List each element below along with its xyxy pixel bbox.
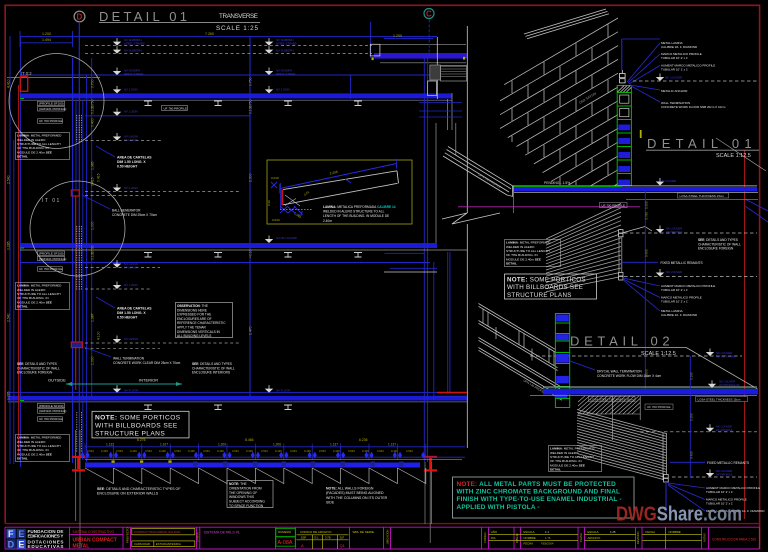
svg-text:DRYCAL WALL TERMINATION: DRYCAL WALL TERMINATION bbox=[597, 370, 642, 374]
svg-text:NV LNSSN: NV LNSSN bbox=[124, 337, 138, 341]
svg-text:LENGTH OF THE BUILDING. IN MOD: LENGTH OF THE BUILDING. IN MODULE DE bbox=[323, 214, 389, 218]
svg-text:DETAIL: DETAIL bbox=[17, 457, 28, 461]
svg-text:WALL TERMINATION: WALL TERMINATION bbox=[113, 357, 145, 361]
svg-text:CODIGO DE ARCHIVO: CODIGO DE ARCHIVO bbox=[300, 530, 332, 534]
svg-text:4.543: 4.543 bbox=[290, 449, 297, 453]
svg-text:STRUCTURE PLANS: STRUCTURE PLANS bbox=[507, 292, 572, 299]
svg-text:0.50 HEIGHT: 0.50 HEIGHT bbox=[117, 165, 138, 169]
svg-text:DETAIL: DETAIL bbox=[17, 155, 28, 159]
svg-text:2.40m: 2.40m bbox=[323, 219, 332, 223]
svg-text:BRICK STRAW: BRICK STRAW bbox=[276, 72, 296, 76]
svg-text:0.426: 0.426 bbox=[130, 449, 137, 453]
svg-text:NV 1.200N: NV 1.200N bbox=[124, 186, 138, 190]
svg-text:UBICACION: UBICACION bbox=[385, 529, 389, 544]
svg-text:WITH ZINC CHROMATE BACKGROUND: WITH ZINC CHROMATE BACKGROUND AND FINAL bbox=[457, 489, 621, 496]
svg-text:ARCHIVO: ARCHIVO bbox=[588, 536, 602, 540]
svg-text:NV SLBBSPH: NV SLBBSPH bbox=[124, 49, 142, 53]
svg-text:0.285: 0.285 bbox=[7, 391, 11, 400]
svg-text:TUBULAR 10' 2' x 1': TUBULAR 10' 2' x 1' bbox=[661, 56, 689, 60]
svg-text:4.543: 4.543 bbox=[261, 449, 268, 453]
svg-text:0.100: 0.100 bbox=[90, 251, 94, 260]
svg-text:NV FLOOR: NV FLOOR bbox=[124, 389, 138, 393]
svg-text:NK LOUVER: NK LOUVER bbox=[665, 76, 683, 80]
svg-text:CONCRETE DIM 25cm X 70cm: CONCRETE DIM 25cm X 70cm bbox=[112, 213, 157, 217]
svg-text:0.426: 0.426 bbox=[246, 449, 253, 453]
svg-text:1.132: 1.132 bbox=[106, 443, 114, 447]
svg-text:WELDED IN ALERO STRUCTURE TO A: WELDED IN ALERO STRUCTURE TO ALL bbox=[323, 210, 385, 214]
svg-text:2.540: 2.540 bbox=[7, 313, 11, 322]
svg-text:ORIENTATION FROM: ORIENTATION FROM bbox=[229, 486, 262, 490]
svg-text:NOTE: ALL METAL PARTS MUST BE: NOTE: ALL METAL PARTS MUST BE PROTECTED bbox=[457, 481, 617, 488]
svg-text:PLANO: PLANO bbox=[579, 533, 583, 542]
svg-text:DETAIL: DETAIL bbox=[506, 262, 517, 266]
svg-text:NK LOUVER: NK LOUVER bbox=[660, 179, 676, 183]
svg-text:3LP: 3LP bbox=[340, 536, 345, 540]
svg-text:0.400: 0.400 bbox=[90, 118, 94, 127]
svg-text:DIM 1.50 LONG. X: DIM 1.50 LONG. X bbox=[117, 160, 146, 164]
svg-text:ENCLOSURE FOREIGN: ENCLOSURE FOREIGN bbox=[698, 247, 734, 251]
svg-text:OUTSIDE: OUTSIDE bbox=[48, 378, 66, 383]
svg-text:TUBULAR 10' 2' x 1': TUBULAR 10' 2' x 1' bbox=[706, 490, 734, 494]
svg-text:INTERIOR: INTERIOR bbox=[139, 378, 158, 383]
svg-text:APPLIED WITH PISTOLA -: APPLIED WITH PISTOLA - bbox=[457, 504, 540, 511]
svg-text:STEEL STRABS: STEEL STRABS bbox=[276, 41, 297, 45]
svg-text:NV SLBBSPH: NV SLBBSPH bbox=[276, 49, 294, 53]
svg-text:0.415: 0.415 bbox=[90, 177, 94, 186]
svg-text:0.100: 0.100 bbox=[249, 105, 253, 114]
svg-text:NOMBRE: NOMBRE bbox=[524, 536, 536, 540]
svg-text:FIXED METALLIC REMANTS: FIXED METALLIC REMANTS bbox=[707, 461, 749, 465]
svg-text:1.385: 1.385 bbox=[90, 161, 94, 170]
svg-text:ESP: ESP bbox=[301, 536, 306, 540]
svg-text:UF PROFILE: UF PROFILE bbox=[666, 230, 683, 234]
svg-text:NOMBRE: NOMBRE bbox=[669, 530, 681, 534]
svg-text:AÑO: AÑO bbox=[491, 529, 498, 534]
svg-text:DETAIL 01: DETAIL 01 bbox=[99, 9, 191, 24]
svg-text:1.000: 1.000 bbox=[90, 221, 94, 230]
svg-text:4.543: 4.543 bbox=[116, 449, 123, 453]
svg-text:WITH THE COLUMNS ON ITS OUTER: WITH THE COLUMNS ON ITS OUTER bbox=[326, 496, 388, 500]
svg-text:1.494: 1.494 bbox=[42, 38, 51, 42]
svg-text:7.260: 7.260 bbox=[205, 32, 214, 36]
svg-text:D: D bbox=[8, 539, 15, 549]
svg-text:3-7B: 3-7B bbox=[325, 536, 331, 540]
svg-text:0.040: 0.040 bbox=[271, 176, 279, 180]
svg-text:1:25: 1:25 bbox=[610, 530, 616, 534]
svg-text:WITH BILLBOARDS SEE: WITH BILLBOARDS SEE bbox=[95, 423, 178, 430]
svg-text:UF 700 PROFILE: UF 700 PROFILE bbox=[39, 267, 63, 271]
svg-text:DETAIL: DETAIL bbox=[17, 305, 28, 309]
svg-text:CAPACIDAD: CAPACIDAD bbox=[134, 542, 150, 546]
svg-text:0.285: 0.285 bbox=[7, 241, 11, 250]
svg-text:4.543: 4.543 bbox=[406, 449, 413, 453]
svg-text:CONCRETE WORK CLEAR DIM 25cm X: CONCRETE WORK CLEAR DIM 25cm X 70cm bbox=[113, 361, 181, 365]
svg-text:NV 1.200N: NV 1.200N bbox=[124, 88, 138, 92]
svg-text:1.200: 1.200 bbox=[393, 34, 402, 38]
svg-text:4.410: 4.410 bbox=[7, 79, 11, 88]
svg-text:WINDOWS THIS: WINDOWS THIS bbox=[229, 495, 255, 499]
svg-text:WRL DE SERIE: WRL DE SERIE bbox=[353, 530, 374, 534]
svg-text:E-1: E-1 bbox=[315, 536, 320, 540]
svg-text:A: A bbox=[301, 543, 304, 548]
svg-text:ENCLOSURE INTERIORS: ENCLOSURE INTERIORS bbox=[192, 371, 230, 375]
svg-text:NV FLOOR: NV FLOOR bbox=[276, 389, 290, 393]
svg-text:SCALE 1:12.5: SCALE 1:12.5 bbox=[716, 153, 751, 159]
svg-text:(GRN101 PROFILE): (GRN101 PROFILE) bbox=[39, 409, 66, 413]
svg-text:6.276: 6.276 bbox=[137, 438, 146, 442]
svg-text:4.543: 4.543 bbox=[145, 449, 152, 453]
svg-text:NUMERO: NUMERO bbox=[278, 530, 292, 534]
svg-text:LAMINA: LAMINA bbox=[195, 532, 199, 542]
svg-text:(GRN101 PROFILE): (GRN101 PROFILE) bbox=[39, 257, 66, 261]
svg-text:FIXED METALLIC REMANTS: FIXED METALLIC REMANTS bbox=[661, 261, 703, 265]
svg-text:METALIC ANCHOR: METALIC ANCHOR bbox=[661, 89, 688, 93]
svg-text:SUBJECT ACCORDING: SUBJECT ACCORDING bbox=[229, 500, 265, 504]
svg-text:0.426: 0.426 bbox=[101, 449, 108, 453]
svg-text:CODIGO: CODIGO bbox=[483, 532, 487, 543]
svg-text:DIM 1.50 LONG. X: DIM 1.50 LONG. X bbox=[117, 311, 146, 315]
svg-text:CONCRETE WORK FLOW DIM 15cm X: CONCRETE WORK FLOW DIM 15cm X 4cm bbox=[597, 374, 661, 378]
svg-text:AREA DE CARTELAS: AREA DE CARTELAS bbox=[117, 307, 152, 311]
svg-text:REVISION: REVISION bbox=[636, 531, 640, 544]
svg-text:4.543: 4.543 bbox=[377, 449, 384, 453]
svg-text:0.400: 0.400 bbox=[645, 249, 649, 257]
svg-text:(PROFILE SF100): (PROFILE SF100) bbox=[39, 404, 64, 408]
svg-text:FECHA: FECHA bbox=[646, 530, 656, 534]
svg-text:4.543: 4.543 bbox=[319, 449, 326, 453]
svg-text:E: E bbox=[18, 539, 24, 549]
svg-text:SEE: DETAILS AND CHARACTERISTI: SEE: DETAILS AND CHARACTERISTIC TYPES OF bbox=[97, 487, 181, 491]
svg-text:CONSTRUCCION AREA 2,520: CONSTRUCCION AREA 2,520 bbox=[712, 538, 756, 542]
svg-text:0.426: 0.426 bbox=[188, 449, 195, 453]
svg-text:SCALE 1:25: SCALE 1:25 bbox=[216, 25, 258, 32]
svg-text:8.466: 8.466 bbox=[245, 438, 254, 442]
svg-text:STRUCTURE PLANS: STRUCTURE PLANS bbox=[95, 431, 165, 438]
svg-text:CALIBRE 10- F. DIAMOND: CALIBRE 10- F. DIAMOND bbox=[661, 313, 698, 317]
svg-text:SISTEMA DETAILS #1: SISTEMA DETAILS #1 bbox=[204, 530, 240, 534]
svg-text:1.000: 1.000 bbox=[90, 356, 94, 365]
svg-text:NV NK LOUVER: NV NK LOUVER bbox=[276, 236, 297, 240]
svg-text:DIA: DIA bbox=[491, 536, 496, 540]
svg-text:FINISH WITH TYPE-TO-USE ENAMEL: FINISH WITH TYPE-TO-USE ENAMEL INDUSTRIA… bbox=[457, 496, 622, 503]
svg-text:WITH BILLBOARDS SEE: WITH BILLBOARDS SEE bbox=[507, 284, 583, 291]
svg-text:1.200: 1.200 bbox=[218, 443, 226, 447]
svg-text:0.750: 0.750 bbox=[249, 77, 253, 86]
svg-text:1.200: 1.200 bbox=[42, 32, 51, 36]
svg-text:1.107: 1.107 bbox=[160, 443, 168, 447]
svg-text:NT LNNNN: NT LNNNN bbox=[124, 138, 138, 142]
svg-text:NOTAS: NOTAS bbox=[703, 533, 707, 542]
svg-text:2.540: 2.540 bbox=[7, 175, 11, 184]
svg-text:UF 700 PROFILE: UF 700 PROFILE bbox=[39, 417, 63, 421]
svg-text:4.543: 4.543 bbox=[232, 449, 239, 453]
svg-text:TUBULAR 10' 1' x 1': TUBULAR 10' 1' x 1' bbox=[661, 68, 689, 72]
svg-text:(FACADES) MUST BEING ALIGNED: (FACADES) MUST BEING ALIGNED bbox=[326, 491, 384, 495]
svg-text:UF 700 PROFILE: UF 700 PROFILE bbox=[39, 119, 63, 123]
svg-text:EDUCATIVAS: EDUCATIVAS bbox=[28, 544, 64, 549]
svg-text:TRANSVERSE: TRANSVERSE bbox=[219, 13, 258, 20]
svg-text:(GRN101 PROFILE): (GRN101 PROFILE) bbox=[39, 107, 66, 111]
svg-text:4.543: 4.543 bbox=[203, 449, 210, 453]
svg-text:Q1: Q1 bbox=[340, 543, 346, 548]
svg-text:AREA DE CARTELAS: AREA DE CARTELAS bbox=[117, 156, 152, 160]
svg-text:COMPACT BOLIVARIAN SCHOOL: COMPACT BOLIVARIAN SCHOOL bbox=[134, 530, 181, 534]
svg-text:1.387: 1.387 bbox=[90, 313, 94, 322]
svg-text:FEB/2004: FEB/2004 bbox=[541, 542, 554, 546]
svg-text:0.400: 0.400 bbox=[690, 451, 694, 459]
svg-text:0.426: 0.426 bbox=[159, 449, 166, 453]
svg-text:CONCRETE WORK FLOOR SNB 20cm X: CONCRETE WORK FLOOR SNB 20cm X 10cm bbox=[661, 105, 726, 109]
svg-text:(PROFILE SF100): (PROFILE SF100) bbox=[39, 102, 64, 106]
svg-text:SISTEMA CONSTRUCTIVO: SISTEMA CONSTRUCTIVO bbox=[73, 530, 115, 534]
svg-text:NOTE: SOME PORTICOS: NOTE: SOME PORTICOS bbox=[507, 277, 586, 284]
svg-text:TUBULAR 10' 2' x 1': TUBULAR 10' 2' x 1' bbox=[661, 300, 689, 304]
svg-text:0.750: 0.750 bbox=[645, 212, 649, 220]
svg-text:ESTUDIANTES/DIA: ESTUDIANTES/DIA bbox=[156, 542, 181, 546]
svg-text:1:1: 1:1 bbox=[545, 530, 549, 534]
svg-text:NT LNNNN: NT LNNNN bbox=[124, 265, 138, 269]
svg-text:CALIBRE 18- F. DIAMOND: CALIBRE 18- F. DIAMOND bbox=[661, 45, 698, 49]
svg-text:LAMINA: METALICA PREFORMADA CA: LAMINA: METALICA PREFORMADA CALIBRE 14 bbox=[323, 205, 396, 209]
svg-text:/T 0:2: /T 0:2 bbox=[21, 71, 32, 76]
svg-text:SIDE: SIDE bbox=[326, 500, 335, 504]
svg-text:1.137: 1.137 bbox=[330, 443, 338, 447]
svg-text:0.415: 0.415 bbox=[97, 173, 101, 182]
svg-text:4.100: 4.100 bbox=[97, 331, 101, 340]
svg-text:METAL: METAL bbox=[73, 544, 90, 550]
svg-text:UF PROFILE: UF PROFILE bbox=[716, 472, 733, 476]
svg-text:UF 700 PROFILE: UF 700 PROFILE bbox=[647, 405, 671, 409]
svg-text:0.426: 0.426 bbox=[217, 449, 224, 453]
svg-text:0.50 HEIGHT: 0.50 HEIGHT bbox=[117, 316, 138, 320]
svg-text:UF 760 PROFILE: UF 760 PROFILE bbox=[164, 106, 188, 110]
svg-text:C: C bbox=[426, 10, 432, 19]
svg-text:NV 1.200N: NV 1.200N bbox=[276, 88, 290, 92]
svg-text:A-08A: A-08A bbox=[278, 540, 293, 546]
svg-text:DETAIL 02: DETAIL 02 bbox=[570, 334, 673, 349]
svg-text:BALL GENERATOR: BALL GENERATOR bbox=[112, 209, 141, 213]
svg-text:E: E bbox=[18, 529, 24, 539]
svg-text:NOTE: ALL WALLS FOREIGN: NOTE: ALL WALLS FOREIGN bbox=[326, 487, 374, 491]
svg-text:DETAIL 01: DETAIL 01 bbox=[647, 136, 755, 151]
svg-text:0.300: 0.300 bbox=[645, 201, 649, 209]
svg-text:TUBULAR 10' 2' x 1': TUBULAR 10' 2' x 1' bbox=[661, 288, 689, 292]
svg-text:BRICK STRAW: BRICK STRAW bbox=[124, 72, 144, 76]
svg-text:EDIFICACIONES Y: EDIFICACIONES Y bbox=[28, 533, 64, 538]
svg-text:PROYECTO: PROYECTO bbox=[126, 527, 130, 543]
svg-text:ALL BUILDING LEVELS: ALL BUILDING LEVELS bbox=[177, 334, 211, 338]
svg-text:6.190: 6.190 bbox=[690, 372, 694, 380]
svg-text:2.300: 2.300 bbox=[249, 173, 253, 182]
svg-text:ESCALA: ESCALA bbox=[524, 530, 535, 534]
svg-text:LOSA-STEEL THICKNESS 15cm: LOSA-STEEL THICKNESS 15cm bbox=[698, 398, 741, 402]
svg-text:6.236: 6.236 bbox=[359, 438, 368, 442]
svg-text:4.543: 4.543 bbox=[348, 449, 355, 453]
svg-text:NV 1.200N: NV 1.200N bbox=[124, 283, 138, 287]
svg-text:NK LOUVER: NK LOUVER bbox=[666, 270, 682, 274]
svg-text:FECHA: FECHA bbox=[524, 542, 534, 546]
svg-text:NOTE: THE: NOTE: THE bbox=[229, 482, 248, 486]
svg-text:UF PROFILE 03: UF PROFILE 03 bbox=[719, 383, 740, 387]
svg-text:(PROFILE SF100): (PROFILE SF100) bbox=[39, 251, 64, 255]
svg-text:1:76: 1:76 bbox=[545, 536, 551, 540]
svg-text:0.100: 0.100 bbox=[90, 105, 94, 114]
svg-text:0.30: 0.30 bbox=[267, 200, 271, 206]
svg-text:2.470: 2.470 bbox=[249, 326, 253, 335]
svg-text:NOTE: SOME PORTICOS: NOTE: SOME PORTICOS bbox=[95, 415, 181, 422]
svg-text:IT 01: IT 01 bbox=[42, 198, 61, 204]
svg-text:0.040: 0.040 bbox=[272, 218, 280, 222]
svg-text:0.300: 0.300 bbox=[690, 413, 694, 421]
svg-text:METAL STRAW: METAL STRAW bbox=[716, 354, 736, 358]
svg-text:ENCLOSURE ON EXTERIOR WALLS: ENCLOSURE ON EXTERIOR WALLS bbox=[97, 492, 159, 496]
svg-text:F: F bbox=[8, 529, 14, 539]
svg-text:DWGShare.com: DWGShare.com bbox=[616, 503, 742, 526]
svg-text:UF PROFILE: UF PROFILE bbox=[716, 428, 733, 432]
svg-text:4.543: 4.543 bbox=[174, 449, 181, 453]
svg-text:PENDING - 1.5%: PENDING - 1.5% bbox=[544, 181, 570, 185]
svg-text:1.206: 1.206 bbox=[273, 443, 281, 447]
svg-text:NV 1.200N: NV 1.200N bbox=[124, 110, 138, 114]
svg-text:D: D bbox=[77, 13, 83, 22]
svg-text:THE OPENING OF: THE OPENING OF bbox=[229, 491, 257, 495]
svg-text:ENCLOSURE FOREIGN: ENCLOSURE FOREIGN bbox=[17, 371, 53, 375]
svg-text:ESCALA: ESCALA bbox=[588, 530, 599, 534]
svg-text:STEEL STRABS: STEEL STRABS bbox=[124, 41, 145, 45]
svg-text:DETAIL: DETAIL bbox=[550, 468, 561, 472]
svg-text:TO SPACE FUNCTION: TO SPACE FUNCTION bbox=[229, 504, 264, 508]
svg-text:DIBUJO: DIBUJO bbox=[515, 533, 519, 543]
svg-text:0.426: 0.426 bbox=[362, 449, 369, 453]
svg-text:0.426: 0.426 bbox=[333, 449, 340, 453]
svg-text:LOSA-STEEL THICKNESS 15cm: LOSA-STEEL THICKNESS 15cm bbox=[680, 194, 725, 198]
svg-text:1.137: 1.137 bbox=[388, 443, 396, 447]
svg-text:0.700: 0.700 bbox=[90, 79, 94, 88]
svg-text:+0.10: +0.10 bbox=[249, 249, 253, 258]
